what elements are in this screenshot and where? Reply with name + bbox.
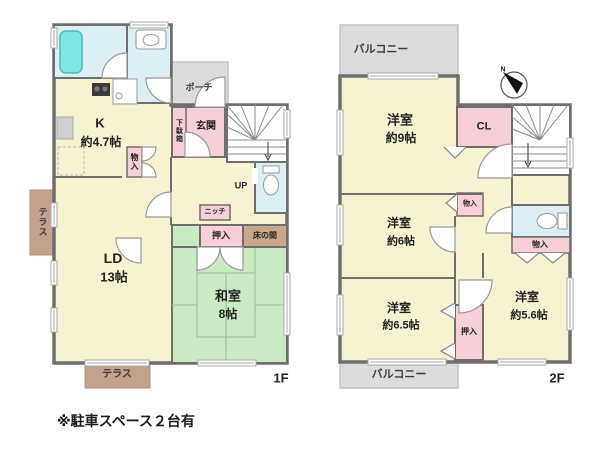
tokonoma-label: 床の間 xyxy=(253,232,277,240)
floor1-tag: 1F xyxy=(273,372,288,385)
stove-burner-right xyxy=(102,86,107,91)
oshiire-2f-label: 押入 xyxy=(461,328,477,336)
genkan-label: 玄関 xyxy=(196,122,216,132)
monoiri-2f-a-label: 物入 xyxy=(463,201,477,208)
stairs-1f xyxy=(227,105,287,162)
niche-label: ニッチ xyxy=(205,209,226,216)
kitchen-size-label: 約4.7帖 xyxy=(81,136,122,148)
floor2-plan xyxy=(337,25,573,388)
balcony-top-label: バルコニー xyxy=(354,45,409,56)
toilet-2f-tank xyxy=(558,213,567,229)
counter-unit xyxy=(57,117,73,139)
terrace-side-label: テラス xyxy=(38,207,47,237)
toilet-2f-bowl xyxy=(537,214,557,229)
ld-size-label: 13帖 xyxy=(100,271,127,284)
cl-label: CL xyxy=(477,122,492,133)
monoiri-1f-label: 物入 xyxy=(130,153,138,171)
porch-label: ポーチ xyxy=(185,84,212,93)
kitchen-sink-icon xyxy=(113,79,137,104)
toilet-1f-door-gap xyxy=(252,168,258,184)
monoiri-2f-b-label: 物入 xyxy=(532,241,548,249)
stairs-up-label: UP xyxy=(235,182,248,191)
toilet-1f-bowl xyxy=(264,175,279,195)
compass-north-label: N xyxy=(500,67,505,74)
bathtub-icon xyxy=(60,31,82,73)
toilet-1f-tank xyxy=(263,166,279,173)
parking-note: ※駐車スペース２台有 xyxy=(57,411,195,431)
oshiire-1f-label: 押入 xyxy=(212,232,230,241)
floorplan-drawing xyxy=(0,0,600,450)
ld-label: LD xyxy=(104,251,123,265)
washitsu-label: 和室 xyxy=(215,290,241,303)
room65-label: 洋室 xyxy=(387,302,411,314)
room6-label: 洋室 xyxy=(387,217,411,229)
stove-burner-left xyxy=(94,86,99,91)
floor1-plan xyxy=(30,22,290,388)
room9-size-label: 約9帖 xyxy=(386,132,417,144)
floorplan-document: K 約4.7帖 LD 13帖 和室 8帖 玄関 下駄箱 ポーチ 物入 ニッチ 押… xyxy=(0,0,600,450)
washbasin-icon xyxy=(136,30,166,49)
room65-size-label: 約6.5帖 xyxy=(382,321,419,332)
kitchen-label: K xyxy=(95,117,104,130)
room9-label: 洋室 xyxy=(387,114,413,127)
room56-label: 洋室 xyxy=(515,291,539,303)
getabako-label: 下駄箱 xyxy=(176,119,183,143)
room56-size-label: 約5.6帖 xyxy=(510,311,547,322)
balcony-bottom-label: バルコニー xyxy=(372,370,427,381)
compass xyxy=(501,72,527,98)
terrace-front-label: テラス xyxy=(102,370,132,380)
room6-size-label: 約6帖 xyxy=(387,237,415,248)
washitsu-size-label: 8帖 xyxy=(219,308,238,320)
floor2-tag: 2F xyxy=(549,372,564,385)
